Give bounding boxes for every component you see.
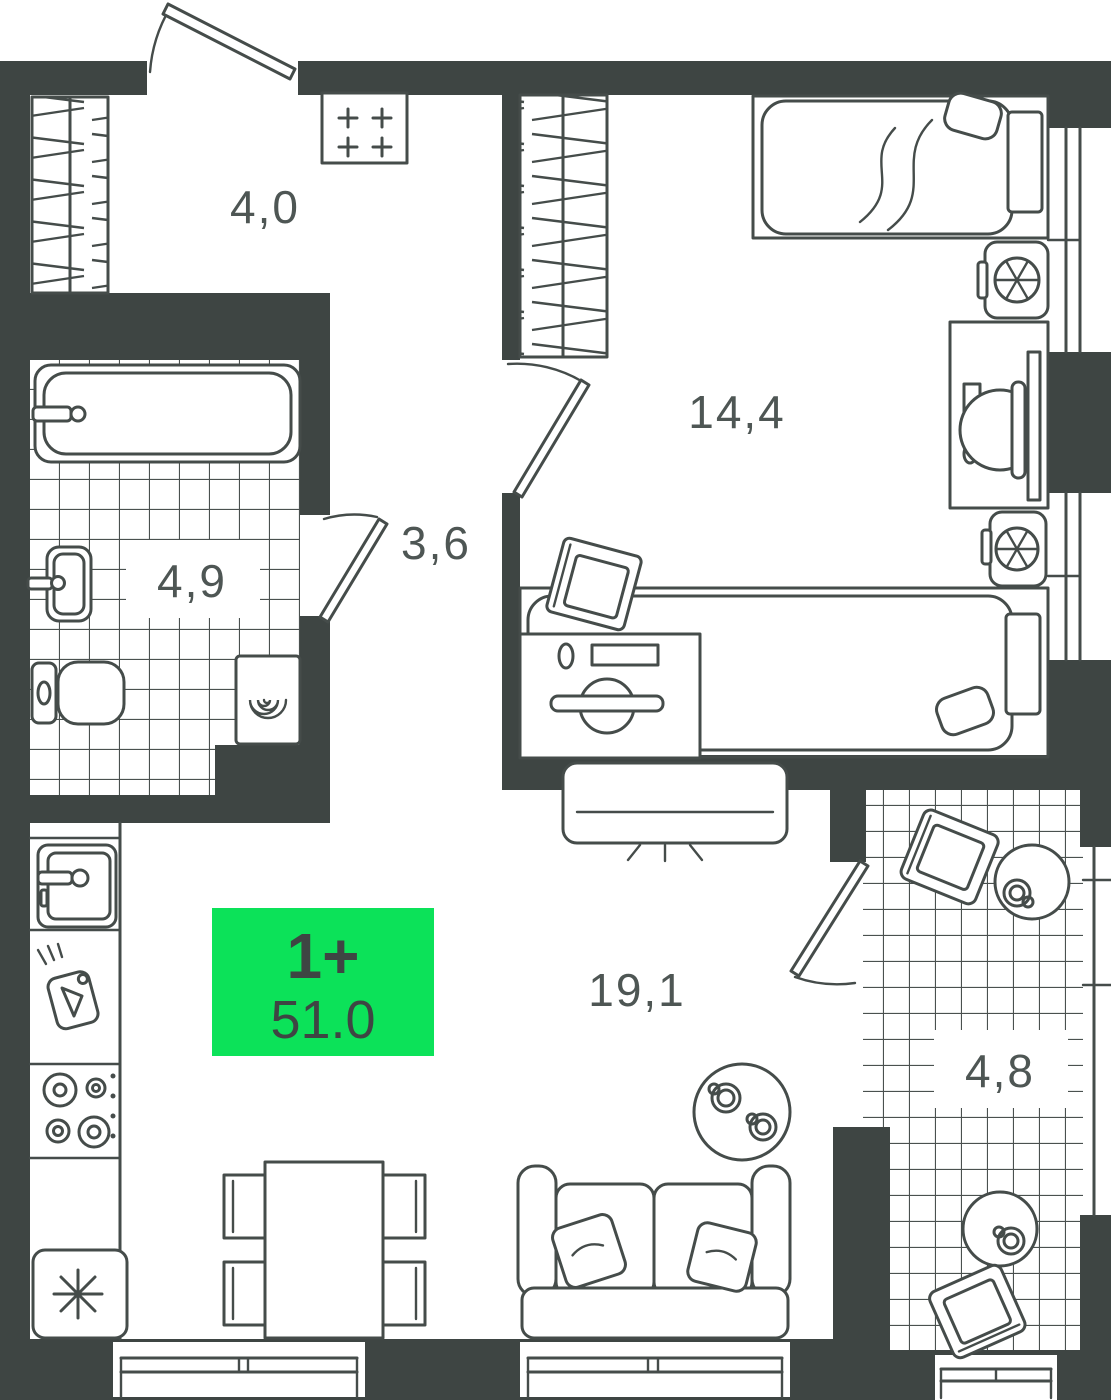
bedroom-window-1 (1048, 128, 1111, 352)
bedroom-wardrobe (520, 95, 607, 357)
cutting-board-icon (38, 944, 100, 1031)
room-label-kitchen-living: 19,1 (588, 964, 686, 1016)
kitchen-sink-icon (38, 845, 116, 927)
bathtub-icon (33, 365, 300, 462)
monitor-icon (1028, 352, 1040, 500)
wall-balcony-hinge-block (830, 790, 866, 862)
room-label-hallway: 4,0 (230, 181, 300, 233)
wall-balcony-left-block (833, 1127, 890, 1400)
hallway-room (32, 93, 407, 293)
dining-chair (224, 1262, 266, 1325)
sofa (518, 1166, 790, 1338)
tv-stand (563, 763, 787, 861)
room-label-bathroom: 4,9 (157, 555, 227, 607)
coffee-table (694, 1064, 790, 1160)
nightstand-plant-1 (978, 242, 1048, 318)
snowflake-icon (54, 1270, 102, 1318)
room-label-bedroom: 14,4 (688, 386, 786, 438)
balcony-window-bottom (935, 1355, 1057, 1400)
floor-plan-svg: 4,0 4,9 3,6 14,4 19,1 4,8 1+ 51.0 (0, 0, 1111, 1400)
hall-wardrobe (32, 97, 108, 293)
living-window-left (113, 1342, 365, 1397)
entrance-door (150, 4, 295, 79)
badge-area-value: 51.0 (270, 990, 375, 1050)
wall-balcony-pillar-bottom (1080, 1215, 1111, 1350)
room-label-corridor: 3,6 (401, 517, 471, 569)
balcony-table-1 (995, 845, 1069, 919)
wall-balcony-pillar-top (1080, 750, 1111, 847)
floor-plan: 4,0 4,9 3,6 14,4 19,1 4,8 1+ 51.0 (0, 0, 1111, 1400)
wall-bathroom-corner-block (215, 745, 330, 795)
toilet-icon (32, 662, 124, 724)
wall-hall-bathroom (0, 293, 330, 360)
fridge (33, 1250, 127, 1338)
wall-bathroom-right-upper (300, 293, 330, 515)
wall-left (0, 61, 30, 1400)
bedroom-door (508, 364, 589, 497)
room-label-balcony: 4,8 (965, 1045, 1035, 1097)
wall-bathroom-bottom (0, 795, 330, 823)
badge-type-label: 1+ (287, 920, 360, 992)
wall-corridor-bedroom (502, 493, 520, 757)
dining-chair (224, 1175, 266, 1238)
living-window-right (520, 1342, 790, 1397)
balcony-door (791, 861, 868, 984)
wall-top (298, 61, 1111, 95)
washing-machine-icon (236, 656, 300, 744)
bed-1 (753, 90, 1048, 238)
dining-set (224, 1162, 425, 1338)
dining-chair (383, 1262, 425, 1325)
bedroom-window-2 (1048, 493, 1111, 660)
desk-1 (950, 322, 1048, 508)
electrical-panel (322, 93, 407, 163)
apartment-badge: 1+ 51.0 (212, 908, 434, 1056)
nightstand-plant-2 (982, 512, 1046, 586)
dining-chair (383, 1175, 425, 1238)
sofa-pillow-icon (686, 1221, 759, 1294)
bathroom-door (320, 515, 387, 622)
desk-2 (520, 634, 700, 758)
stove-icon (44, 1074, 116, 1148)
wall-hall-bedroom (502, 93, 520, 360)
dining-table (265, 1162, 383, 1338)
balcony-table-2 (963, 1192, 1037, 1266)
balcony-glazing-right (1083, 847, 1111, 1215)
